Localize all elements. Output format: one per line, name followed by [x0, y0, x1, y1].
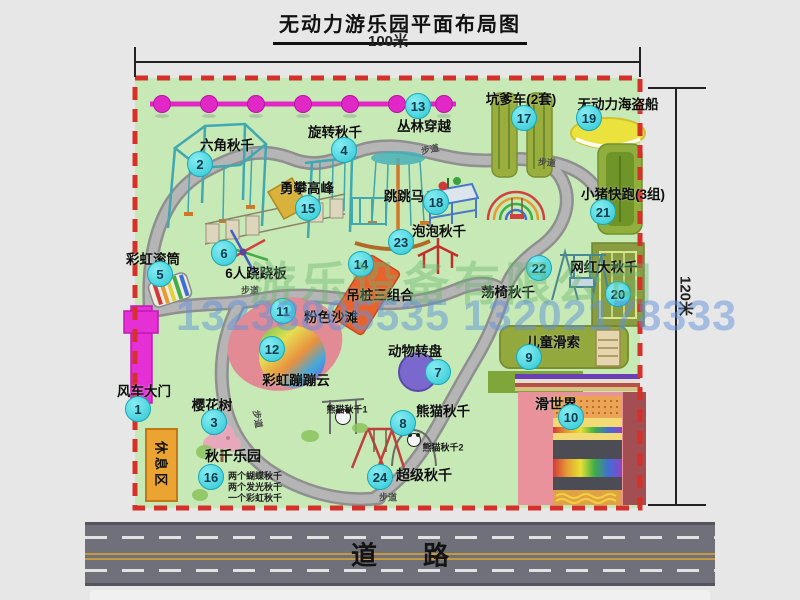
label-hanging-pile: 吊桩三组合	[346, 284, 414, 304]
badge-24: 24	[367, 464, 393, 490]
label-six-seesaw: 6人跷跷板	[225, 262, 287, 282]
badge-13: 13	[405, 93, 431, 119]
dimension-height-label: 120米	[676, 276, 697, 316]
walkway-label: 步道	[379, 491, 397, 504]
road: 道路	[85, 522, 715, 586]
label-piggy-run: 小猪快跑(3组)	[581, 183, 665, 203]
label-climbing-peak: 勇攀高峰	[280, 177, 334, 197]
road-shoulder	[90, 590, 710, 600]
badge-16: 16	[198, 464, 224, 490]
label-panda-swing-2: 熊猫秋千2	[422, 441, 463, 454]
badge-17: 17	[511, 105, 537, 131]
badge-14: 14	[348, 251, 374, 277]
badge-19: 19	[576, 105, 602, 131]
badge-2: 2	[187, 151, 213, 177]
walkway-label: 步道	[241, 284, 259, 297]
walkway-label: 步道	[537, 155, 556, 170]
label-bubble-swing: 泡泡秋千	[412, 220, 466, 240]
label-jungle-crossing: 丛林穿越	[397, 115, 451, 135]
badge-20: 20	[605, 281, 631, 307]
dimension-width-label: 100米	[368, 30, 408, 51]
badge-15: 15	[295, 195, 321, 221]
label-jumping-horse: 跳跳马	[384, 185, 425, 205]
rest-area: 休息区	[145, 428, 178, 502]
label-panda-swing-1: 熊猫秋千1	[326, 403, 367, 416]
label-panda-swing: 熊猫秋千	[416, 400, 470, 420]
badge-22: 22	[526, 255, 552, 281]
label-rainbow-cloud: 彩虹蹦蹦云	[262, 369, 330, 389]
badge-4: 4	[331, 137, 357, 163]
badge-5: 5	[147, 261, 173, 287]
note-rainbow-swing: 一个彩虹秋千	[228, 491, 282, 504]
badge-23: 23	[388, 229, 414, 255]
rest-area-label: 休息区	[152, 441, 171, 489]
label-swing-garden: 秋千乐园	[205, 446, 261, 466]
road-label: 道路	[305, 536, 495, 573]
badge-6: 6	[211, 240, 237, 266]
badge-8: 8	[390, 410, 416, 436]
badge-12: 12	[259, 336, 285, 362]
badge-9: 9	[516, 344, 542, 370]
badge-7: 7	[425, 359, 451, 385]
label-swing-chair: 荡椅秋千	[481, 281, 535, 301]
badge-18: 18	[423, 189, 449, 215]
badge-11: 11	[270, 298, 296, 324]
label-big-swing: 网红大秋千	[570, 256, 638, 276]
badge-1: 1	[125, 396, 151, 422]
label-rotating-swing: 旋转秋千	[308, 121, 362, 141]
label-animal-turntable: 动物转盘	[388, 340, 442, 360]
label-super-swing: 超级秋千	[396, 465, 452, 485]
badge-3: 3	[201, 409, 227, 435]
label-pink-beach: 粉色沙滩	[304, 306, 358, 326]
badge-10: 10	[558, 404, 584, 430]
playground-layout-map: 无动力游乐园平面布局图 100米 120米 休息区 步道 步道 步道 步道 步道…	[0, 0, 800, 600]
badge-21: 21	[590, 199, 616, 225]
label-hexagon-swing: 六角秋千	[200, 134, 254, 154]
